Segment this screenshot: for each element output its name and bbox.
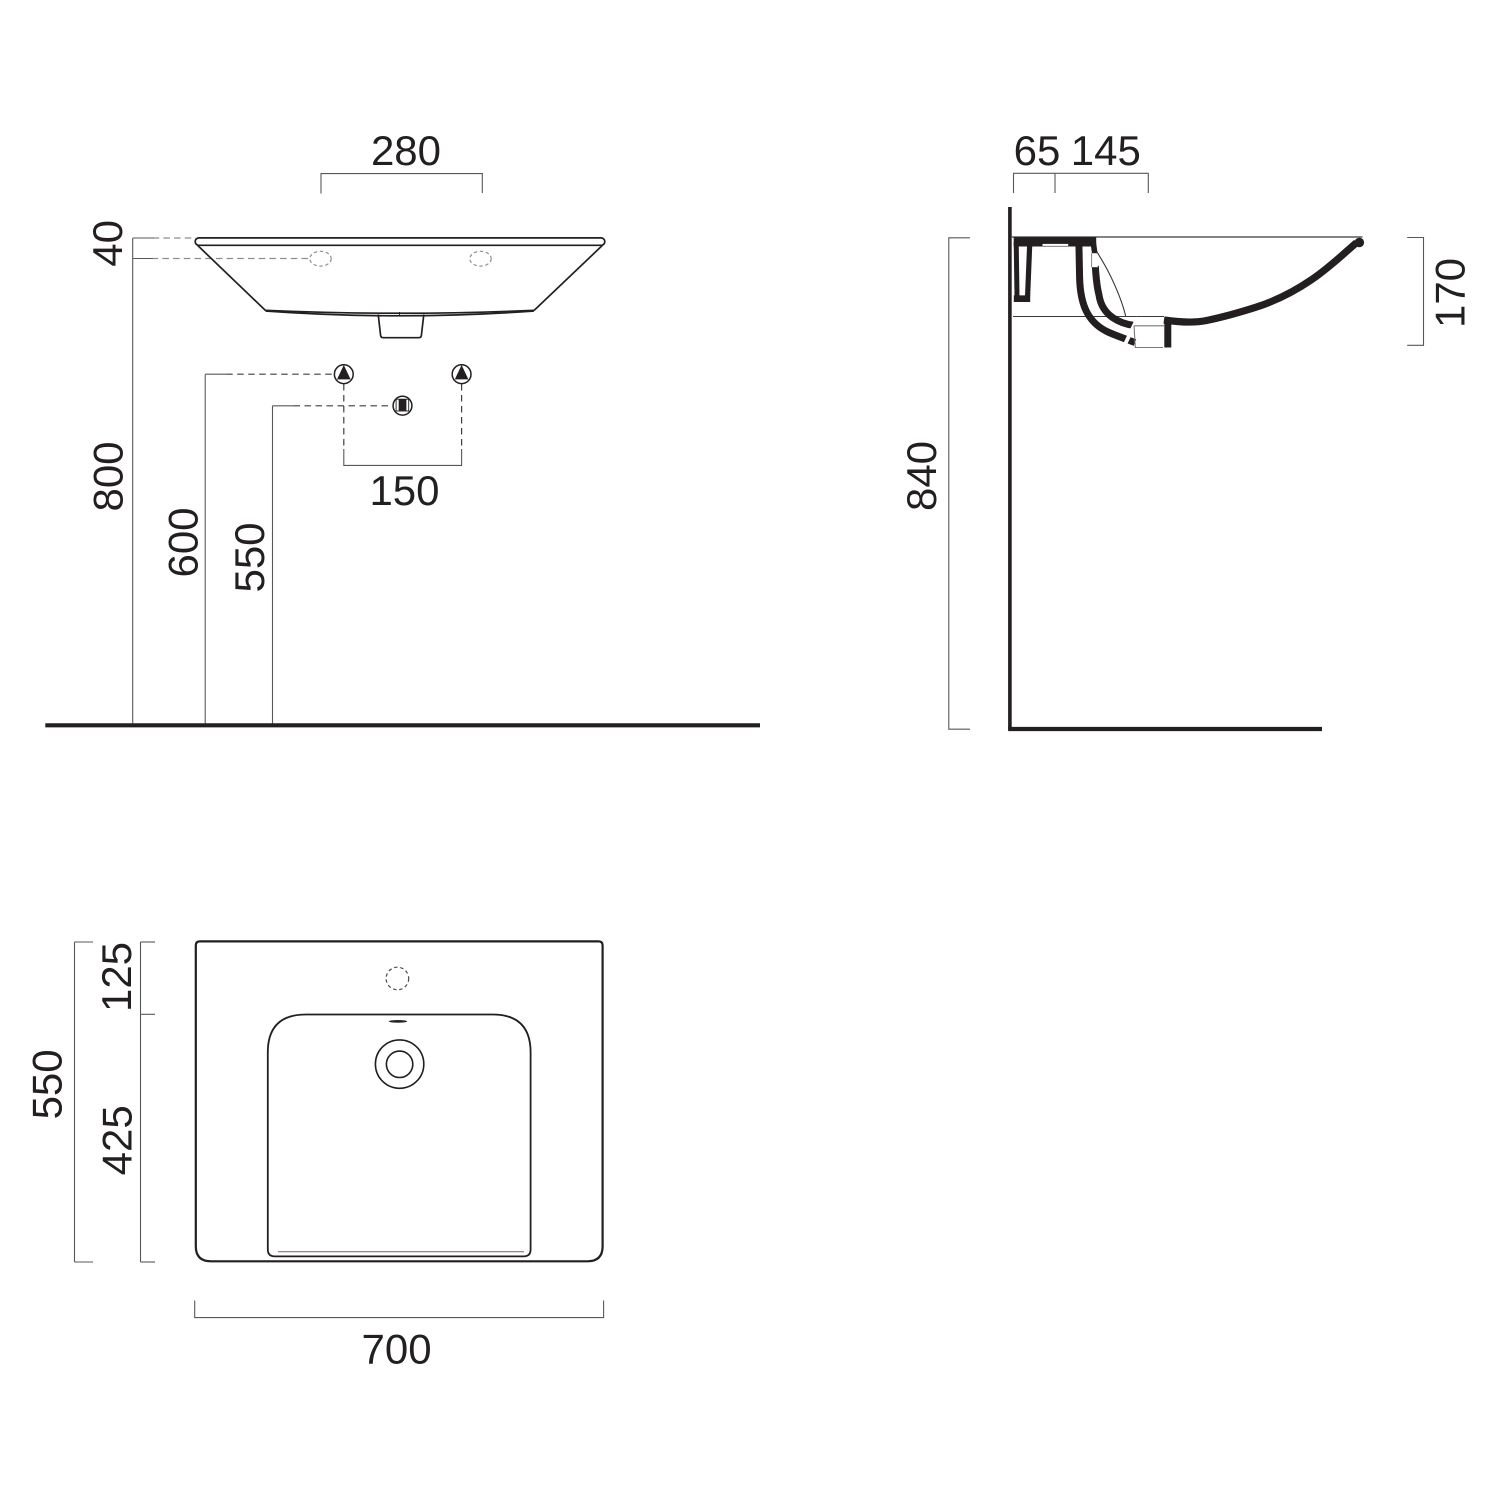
svg-text:550: 550 xyxy=(24,1049,71,1119)
svg-text:170: 170 xyxy=(1427,258,1474,328)
svg-text:425: 425 xyxy=(94,1105,141,1175)
svg-text:700: 700 xyxy=(362,1326,432,1373)
svg-text:150: 150 xyxy=(369,467,439,514)
svg-text:840: 840 xyxy=(898,441,945,511)
svg-text:600: 600 xyxy=(160,507,207,577)
svg-text:40: 40 xyxy=(84,220,131,267)
svg-text:145: 145 xyxy=(1071,127,1141,174)
svg-text:125: 125 xyxy=(93,942,140,1012)
svg-text:550: 550 xyxy=(226,522,273,592)
svg-text:280: 280 xyxy=(371,127,441,174)
svg-text:65: 65 xyxy=(1014,127,1061,174)
svg-text:800: 800 xyxy=(85,441,132,511)
